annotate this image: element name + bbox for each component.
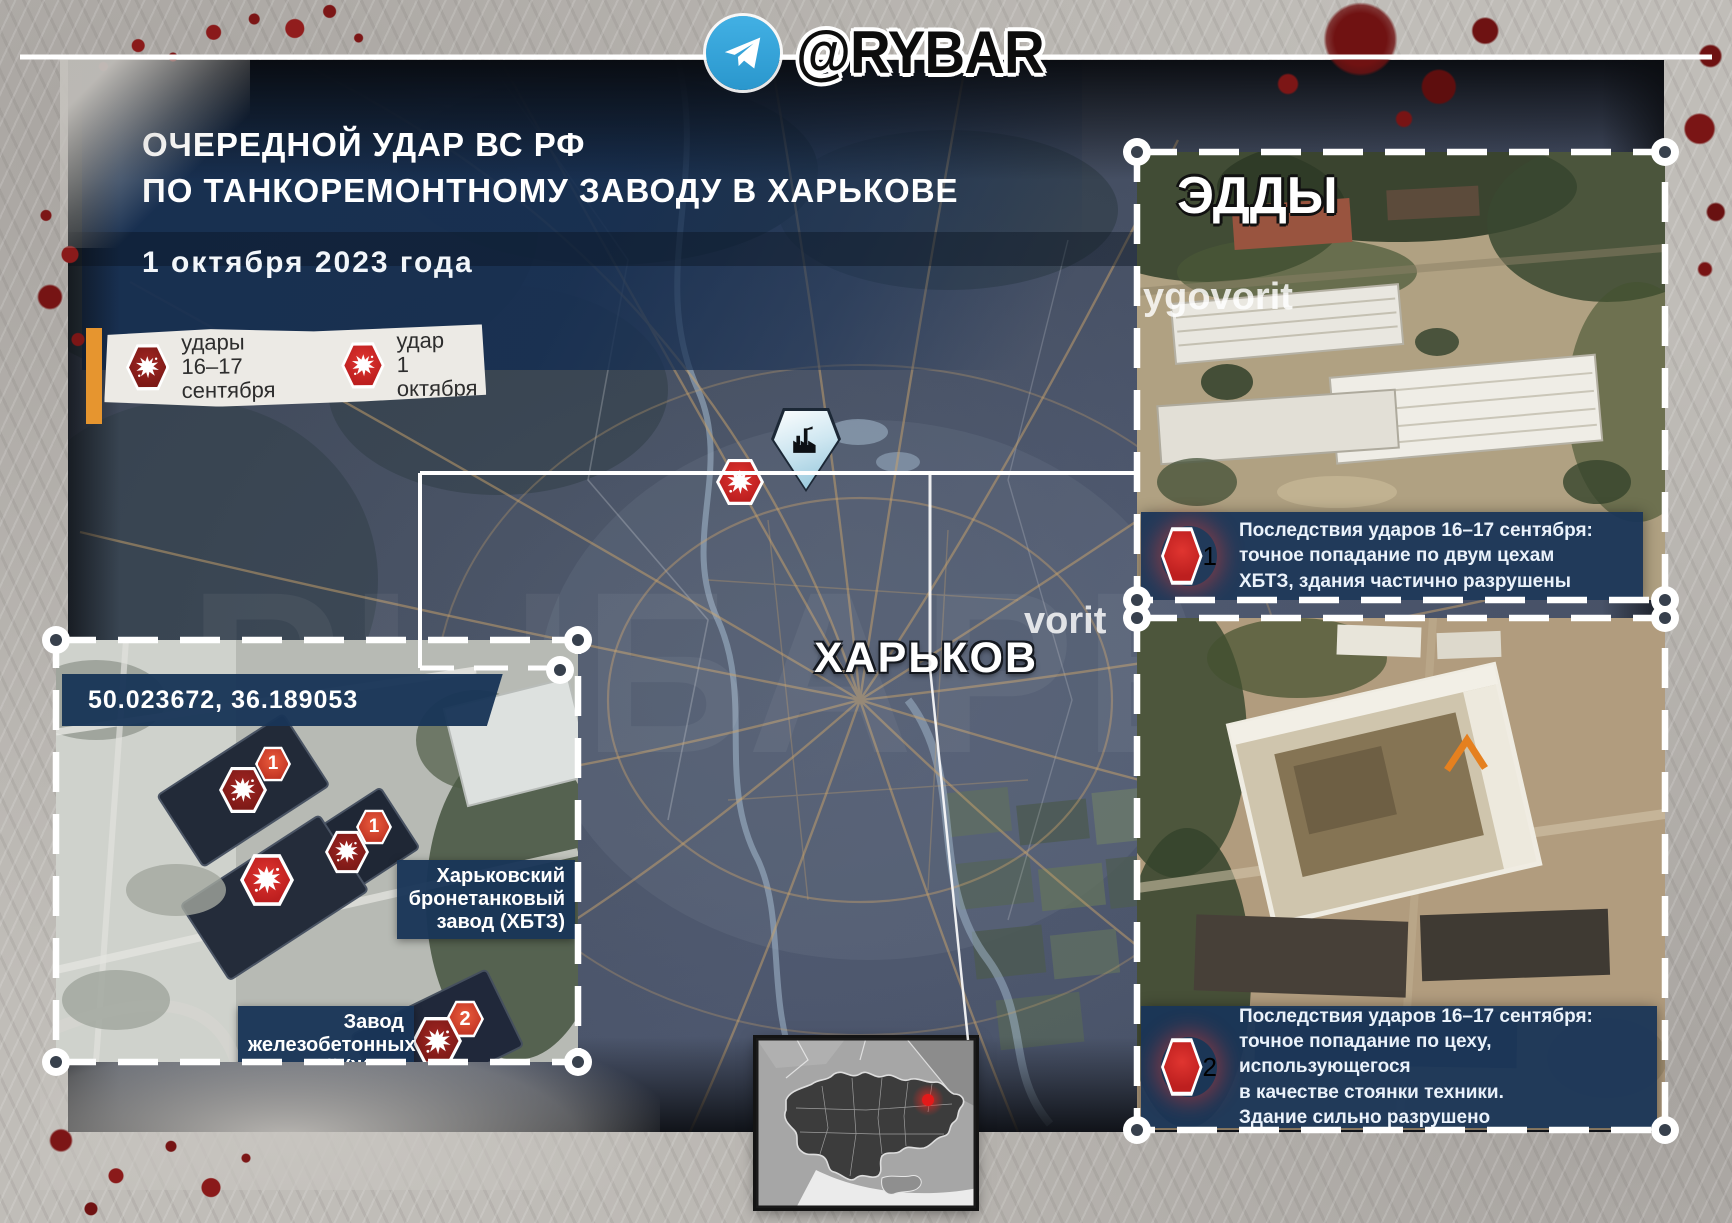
caption-strike-1: 1 Последствия ударов 16–17 сентября: точ… [1141,512,1643,600]
legend-label-october: удар 1 октября [396,328,486,401]
caption-2-text: Последствия ударов 16–17 сентября: точно… [1239,1004,1657,1129]
caption-2-number: 2 [1203,1052,1217,1083]
infographic-canvas: РЫБАРЬ [0,0,1732,1223]
strike-marker-september-1b [325,830,369,874]
inset-satellite-plant-overview: 50.023672, 36.189053 1 1 2 Харьковский б… [56,640,578,1062]
caption-1-number: 1 [1203,541,1217,572]
caption-1-text: Последствия ударов 16–17 сентября: точно… [1239,518,1593,593]
legend-orange-bar [86,328,102,424]
inset-photo-strike-consequences-1: ЭДДЫ ygovorit 1 Последствия ударов 16–17… [1137,152,1665,600]
strike-marker-september-2 [412,1016,462,1062]
title-line-1: ОЧЕРЕДНОЙ УДАР ВС РФ [142,122,1042,168]
infographic-title: ОЧЕРЕДНОЙ УДАР ВС РФ ПО ТАНКОРЕМОНТНОМУ … [142,122,1042,214]
telegram-icon [706,16,780,90]
caption-strike-2: 2 Последствия ударов 16–17 сентября: точ… [1141,1006,1657,1128]
strike-marker-october [240,853,294,907]
infographic-date: 1 октября 2023 года [142,246,474,280]
map-legend: удары 16–17 сентября удар 1 октября [104,324,487,407]
strike-september-icon [126,343,170,391]
legend-item-strike-october: удар 1 октября [341,328,486,402]
strike-marker-september-1a [219,766,267,814]
label-zhbi-plant: Завод железобетонных изделий (ЖБИ) [238,1006,414,1062]
ukraine-map-art [756,1038,976,1208]
legend-item-strikes-september: удары 16–17 сентября [126,329,328,403]
label-khbtz-plant: Харьковский бронетанковый завод (ХБТЗ) [397,860,575,939]
strike-marker-main-map [716,458,764,506]
ukraine-locator-minimap [756,1038,976,1208]
legend-label-september: удары 16–17 сентября [181,329,328,403]
brand-rybar: @RYBAR [796,18,1044,87]
coordinates-band: 50.023672, 36.189053 [62,674,514,726]
caption-2-badge: 2 [1161,1037,1217,1097]
inset-photo-strike-consequences-2: 2 Последствия ударов 16–17 сентября: точ… [1137,618,1665,1130]
city-label-kharkov: ХАРЬКОВ [756,634,1096,683]
caption-1-badge: 1 [1161,526,1217,586]
strike-october-icon [341,341,385,389]
title-line-2: ПО ТАНКОРЕМОНТНОМУ ЗАВОДУ В ХАРЬКОВЕ [142,168,1042,214]
header: @RYBAR [0,0,1732,110]
